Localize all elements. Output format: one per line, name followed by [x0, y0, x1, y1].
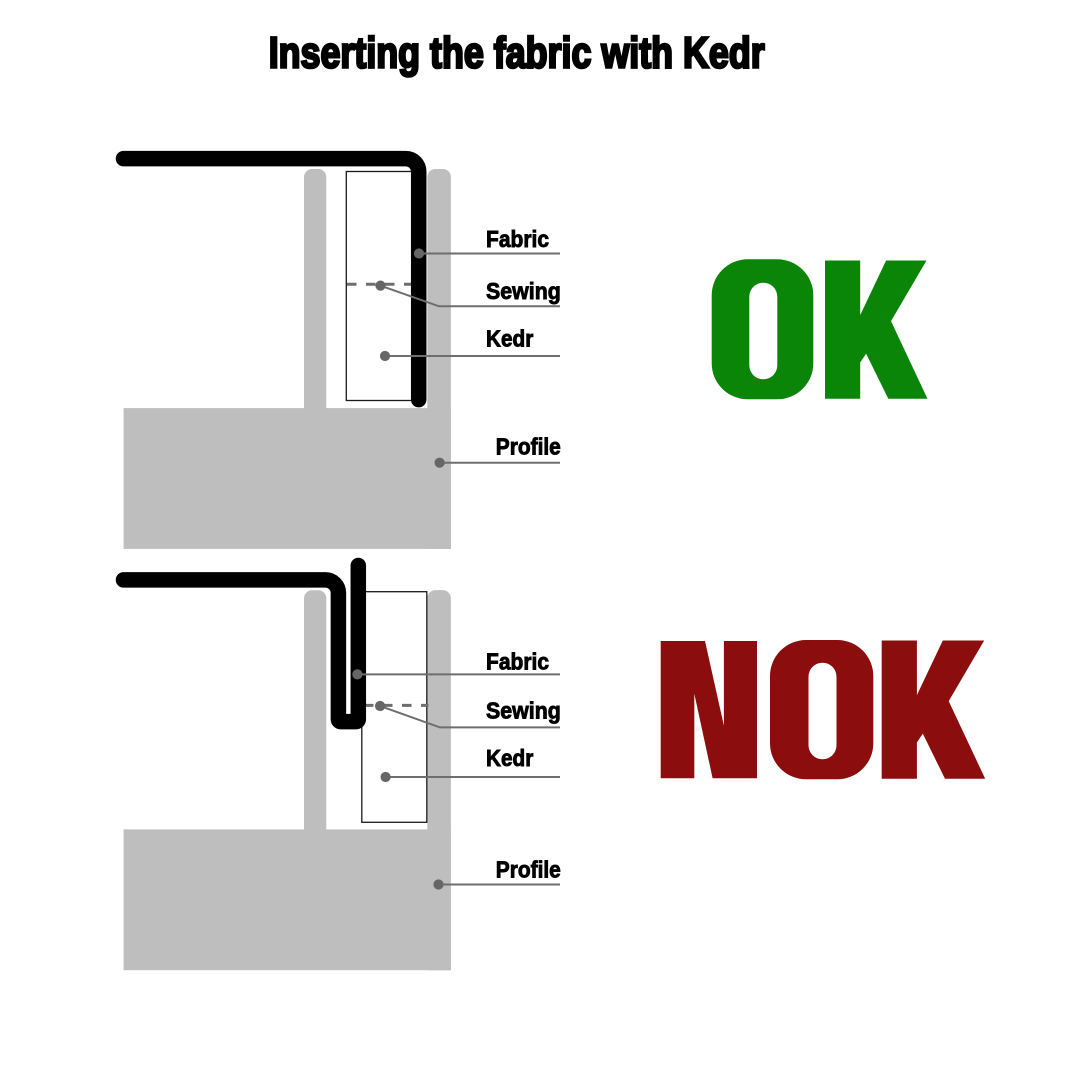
svg-text:Kedr: Kedr	[486, 745, 533, 771]
svg-text:Inserting the fabric with Kedr: Inserting the fabric with Kedr	[269, 30, 765, 78]
svg-text:Kedr: Kedr	[486, 325, 533, 351]
svg-text:Fabric: Fabric	[486, 226, 549, 252]
svg-text:Fabric: Fabric	[486, 649, 549, 675]
svg-text:Profile: Profile	[496, 857, 561, 883]
svg-text:Sewing: Sewing	[486, 278, 561, 304]
svg-text:Profile: Profile	[496, 433, 561, 459]
svg-text:Sewing: Sewing	[486, 698, 561, 724]
